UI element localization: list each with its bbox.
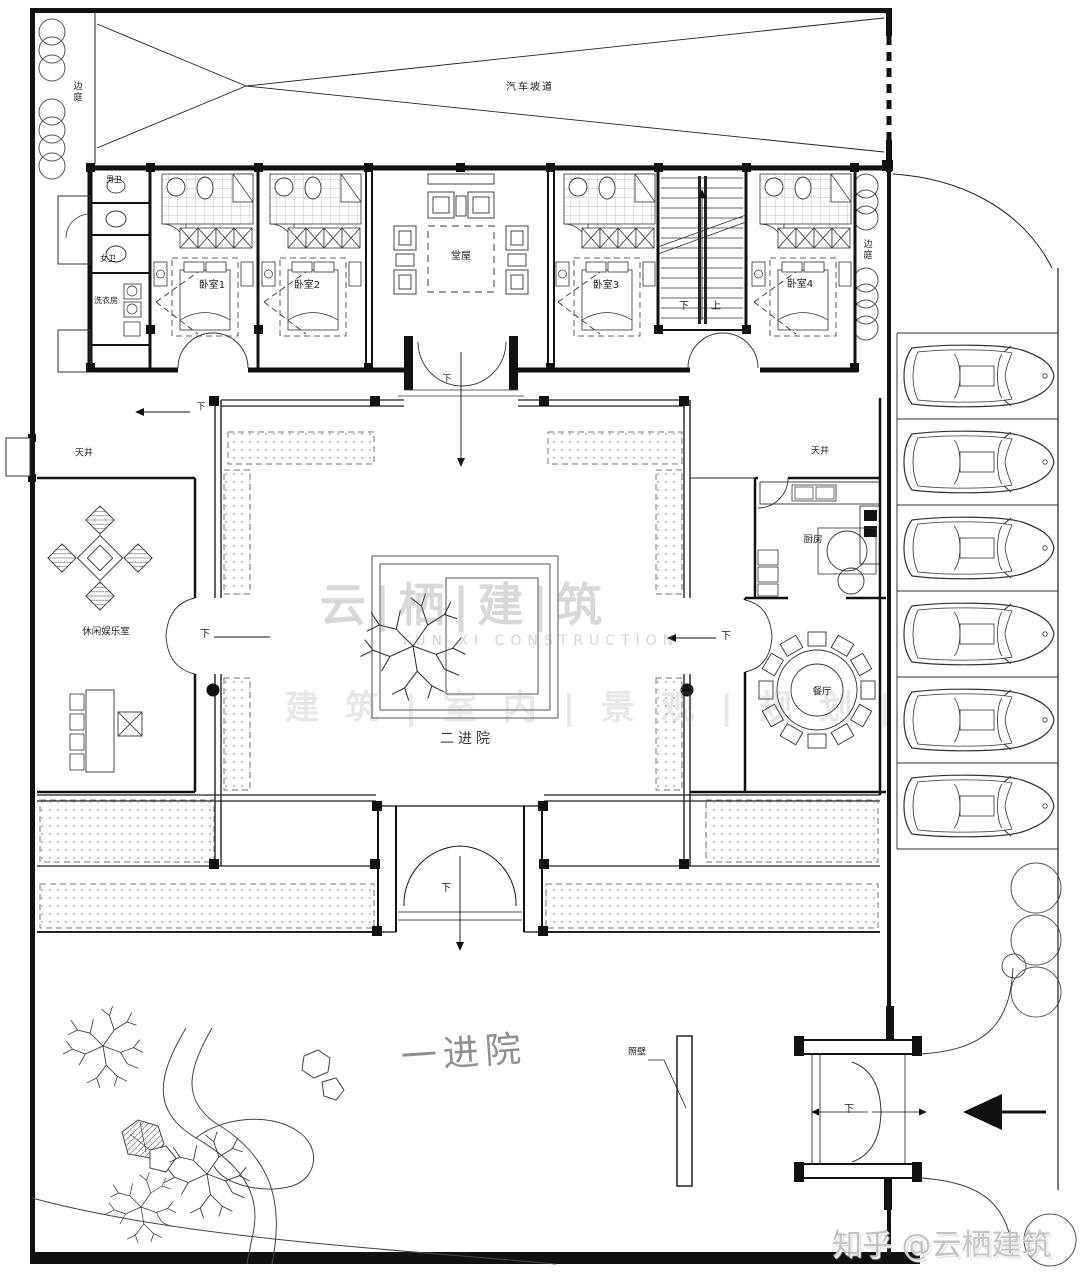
courtyard2-label: 二进院	[440, 732, 494, 746]
service-rooms	[58, 179, 141, 372]
hall-entry-down-label: 下	[442, 376, 451, 385]
terrace-doors	[178, 333, 758, 396]
entrance-down-label: 下	[844, 1105, 854, 1115]
car-5	[904, 689, 1054, 751]
lightwell-right-label: 天井	[811, 448, 829, 457]
floorplan-page: 汽车坡道 边庭 边庭 男卫 女卫 洗衣房 卧室1 卧室2 堂屋 卧室3 卧室4 …	[0, 0, 1080, 1288]
kitchen-label: 厨房	[803, 535, 822, 545]
screen-wall-shape	[648, 1036, 692, 1186]
watermark-credit: 知乎 @云栖建筑	[832, 1220, 1052, 1264]
watermark-services: 建 筑 | 室 内 | 景 观 | 规 划 |	[285, 680, 898, 729]
side-court-left-label: 边庭	[72, 81, 81, 103]
mens-bath-label: 男卫	[106, 176, 122, 184]
dining-label: 餐厅	[812, 687, 831, 697]
watermark-brand-en: YUN XI CONSTRUCTION	[401, 633, 680, 649]
stair-up-label: 上	[711, 302, 721, 312]
womens-bath-label: 女卫	[100, 255, 116, 263]
columns	[28, 163, 859, 869]
corridor-right-down-label: 下	[721, 632, 731, 642]
car-4	[904, 603, 1054, 665]
bedroom4-label: 卧室4	[787, 280, 813, 290]
wing-left-down-label: 下	[196, 404, 205, 413]
lightwell-left-label: 天井	[75, 450, 93, 459]
watermark-brand: 云|栖|建|筑	[320, 569, 610, 635]
screen-wall-label: 照壁	[628, 1049, 646, 1058]
car-6	[904, 775, 1054, 837]
side-court-right-label: 边庭	[862, 239, 871, 261]
corridor-left-down-label: 下	[200, 630, 210, 640]
car-1	[904, 345, 1054, 407]
garden-tree-3	[106, 1172, 176, 1243]
gate-down-label: 下	[441, 884, 451, 894]
laundry-label: 洗衣房	[94, 297, 118, 305]
car-2	[904, 431, 1054, 493]
bedroom3-label: 卧室3	[593, 281, 619, 291]
hall-furniture	[394, 174, 528, 294]
car-3	[904, 517, 1054, 579]
ramp-label: 汽车坡道	[506, 83, 554, 93]
dining-room	[690, 398, 886, 795]
side-entry-step	[6, 438, 30, 476]
hall-label: 堂屋	[451, 252, 471, 262]
leisure-label: 休闲娱乐室	[82, 627, 130, 637]
courtyard1-label: 一进院	[400, 1032, 528, 1077]
bedroom1-label: 卧室1	[199, 281, 225, 291]
bedroom2-label: 卧室2	[294, 281, 320, 291]
staircase	[658, 176, 746, 324]
garden-tree-1	[63, 1006, 143, 1088]
stair-down-label: 下	[679, 302, 689, 312]
